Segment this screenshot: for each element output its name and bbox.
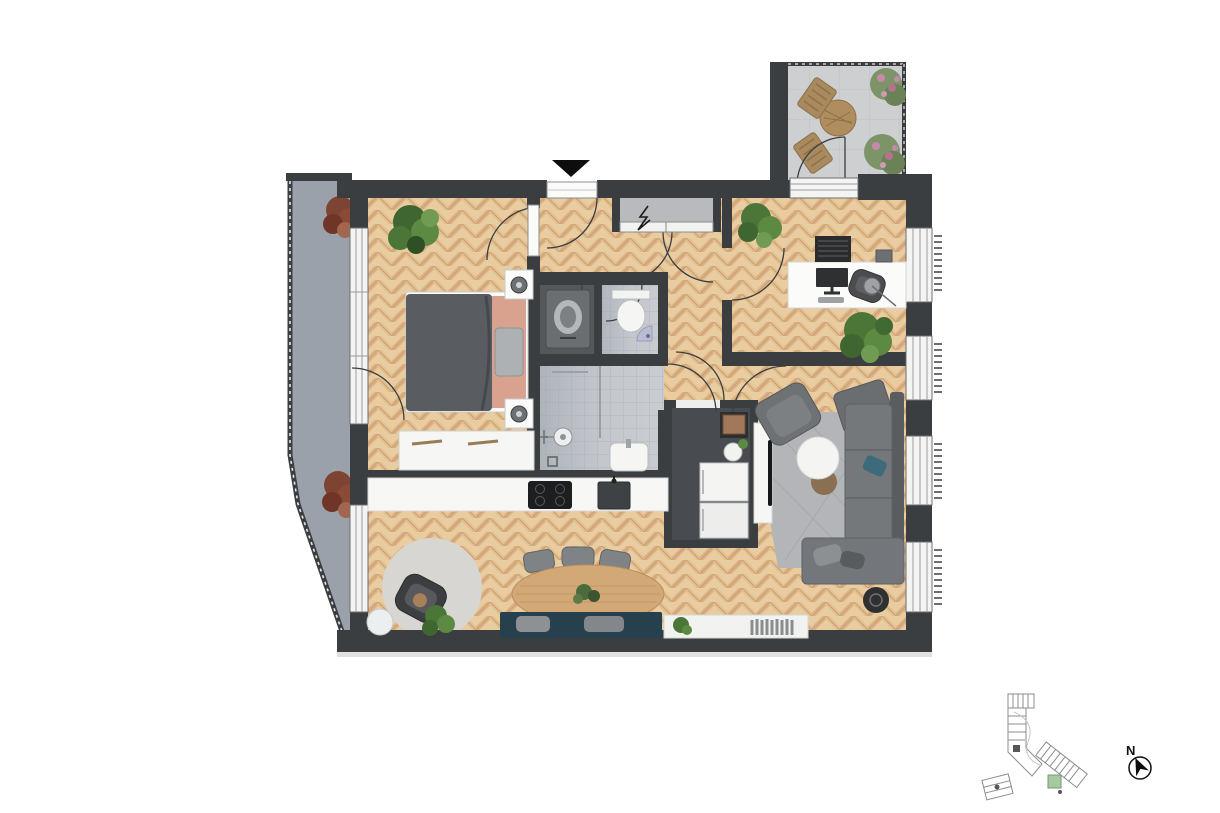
cooktop <box>528 481 572 509</box>
wall-shadow <box>337 652 932 657</box>
floor-plan-canvas: N <box>0 0 1220 813</box>
floor-lamp <box>863 587 889 613</box>
highlighted-unit <box>1048 775 1061 788</box>
north-compass: N <box>1126 743 1151 779</box>
bench-cushion-2 <box>584 616 624 632</box>
entry-arrow-icon <box>552 160 590 177</box>
office-shelf <box>815 236 851 262</box>
bench-cushion-1 <box>516 616 550 632</box>
site-minimap <box>982 694 1087 800</box>
keyboard <box>818 297 844 303</box>
pantry-plant <box>738 439 748 449</box>
toilet-tank <box>612 290 650 299</box>
dining-chair-2 <box>562 547 594 567</box>
monitor <box>816 268 848 287</box>
bed-duvet <box>406 294 492 411</box>
bedroom-door-leaf <box>528 205 539 256</box>
pantry-door-gap <box>676 400 720 408</box>
balcony-top-wall <box>286 173 352 181</box>
sideboard-books <box>752 619 792 635</box>
sofa-seat-right <box>845 404 892 544</box>
bed-pillow <box>495 328 523 376</box>
kitchen <box>368 476 668 511</box>
compass-label: N <box>1126 743 1135 758</box>
sink-faucet <box>626 439 631 448</box>
terrace-top <box>770 62 906 188</box>
terrace-left-wall <box>770 62 788 188</box>
coffee-table <box>797 437 839 479</box>
desk-accessory <box>876 250 892 262</box>
toilet-bowl <box>617 300 645 332</box>
floor-plan: N <box>0 0 1220 813</box>
side-table-white <box>367 609 393 635</box>
tv-screen <box>768 440 772 506</box>
fridge <box>700 463 748 501</box>
utility-room <box>546 290 590 348</box>
freezer <box>700 503 748 538</box>
kitchen-sink <box>598 482 630 509</box>
bedroom-dresser <box>399 431 534 470</box>
